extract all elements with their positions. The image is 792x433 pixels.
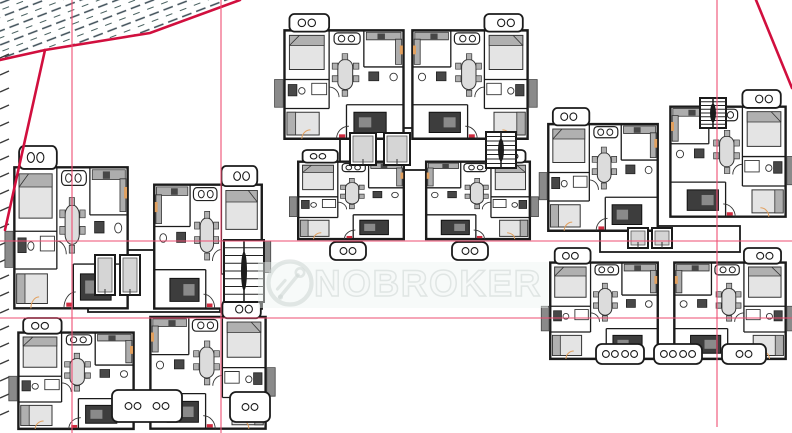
building-cluster-center-block (275, 14, 539, 260)
apartment-unit (670, 90, 792, 217)
boundary-tick (0, 394, 9, 398)
stair-core (486, 132, 516, 168)
lift-core (350, 133, 376, 165)
balcony (112, 390, 182, 422)
site-plan-canvas: NOBROKER (0, 0, 792, 433)
boundary-tick (0, 275, 9, 279)
boundary-tick (0, 292, 9, 296)
boundary-tick (0, 139, 9, 143)
boundary-tick (0, 122, 9, 126)
boundary-tick (0, 309, 9, 313)
boundary-tick (0, 156, 9, 160)
boundary-tick (0, 360, 9, 364)
balcony (330, 242, 366, 260)
balcony (452, 242, 488, 260)
boundary-tick (0, 88, 9, 92)
apartment-unit (674, 248, 792, 359)
lift-core (652, 228, 672, 248)
apartment-unit (426, 150, 538, 239)
lift-core (95, 255, 115, 295)
apartment-unit (412, 14, 537, 139)
boundary-tick (0, 71, 9, 75)
balcony (230, 392, 270, 422)
boundary-tick (0, 105, 9, 109)
stair-core (700, 98, 726, 128)
boundary-tick (0, 173, 9, 177)
boundary-tick (0, 207, 9, 211)
watermark: NOBROKER (258, 262, 548, 309)
building-cluster-west-block (5, 146, 275, 429)
watermark-text: NOBROKER (314, 263, 542, 304)
balcony (596, 344, 644, 364)
lift-core (628, 228, 648, 248)
balcony (722, 344, 766, 364)
boundary-tick (0, 411, 9, 415)
apartment-unit (539, 108, 658, 231)
building-cluster-east-block (539, 90, 792, 364)
boundary-tick (0, 326, 9, 330)
boundary-tick (0, 377, 9, 381)
building-clusters (5, 14, 792, 429)
site-boundary-line (756, 0, 792, 88)
floor-plan-image: NOBROKER (0, 0, 792, 433)
lift-core (120, 255, 140, 295)
balcony (654, 344, 702, 364)
apartment-unit (275, 14, 404, 139)
boundary-tick (0, 343, 9, 347)
boundary-tick (0, 190, 9, 194)
lift-core (384, 133, 410, 165)
apartment-unit (541, 248, 657, 359)
